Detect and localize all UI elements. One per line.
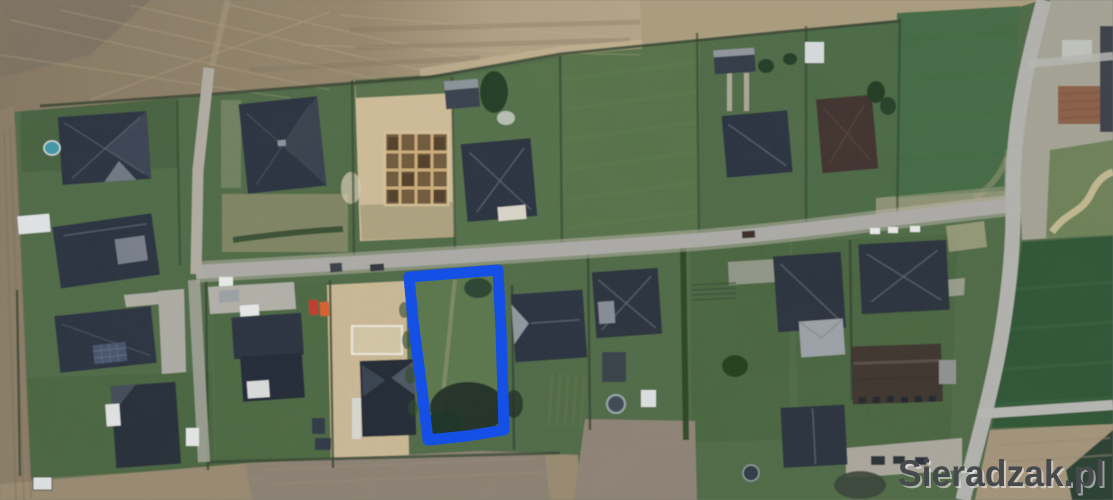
svg-text:Sieradzak.pl: Sieradzak.pl (898, 453, 1105, 494)
